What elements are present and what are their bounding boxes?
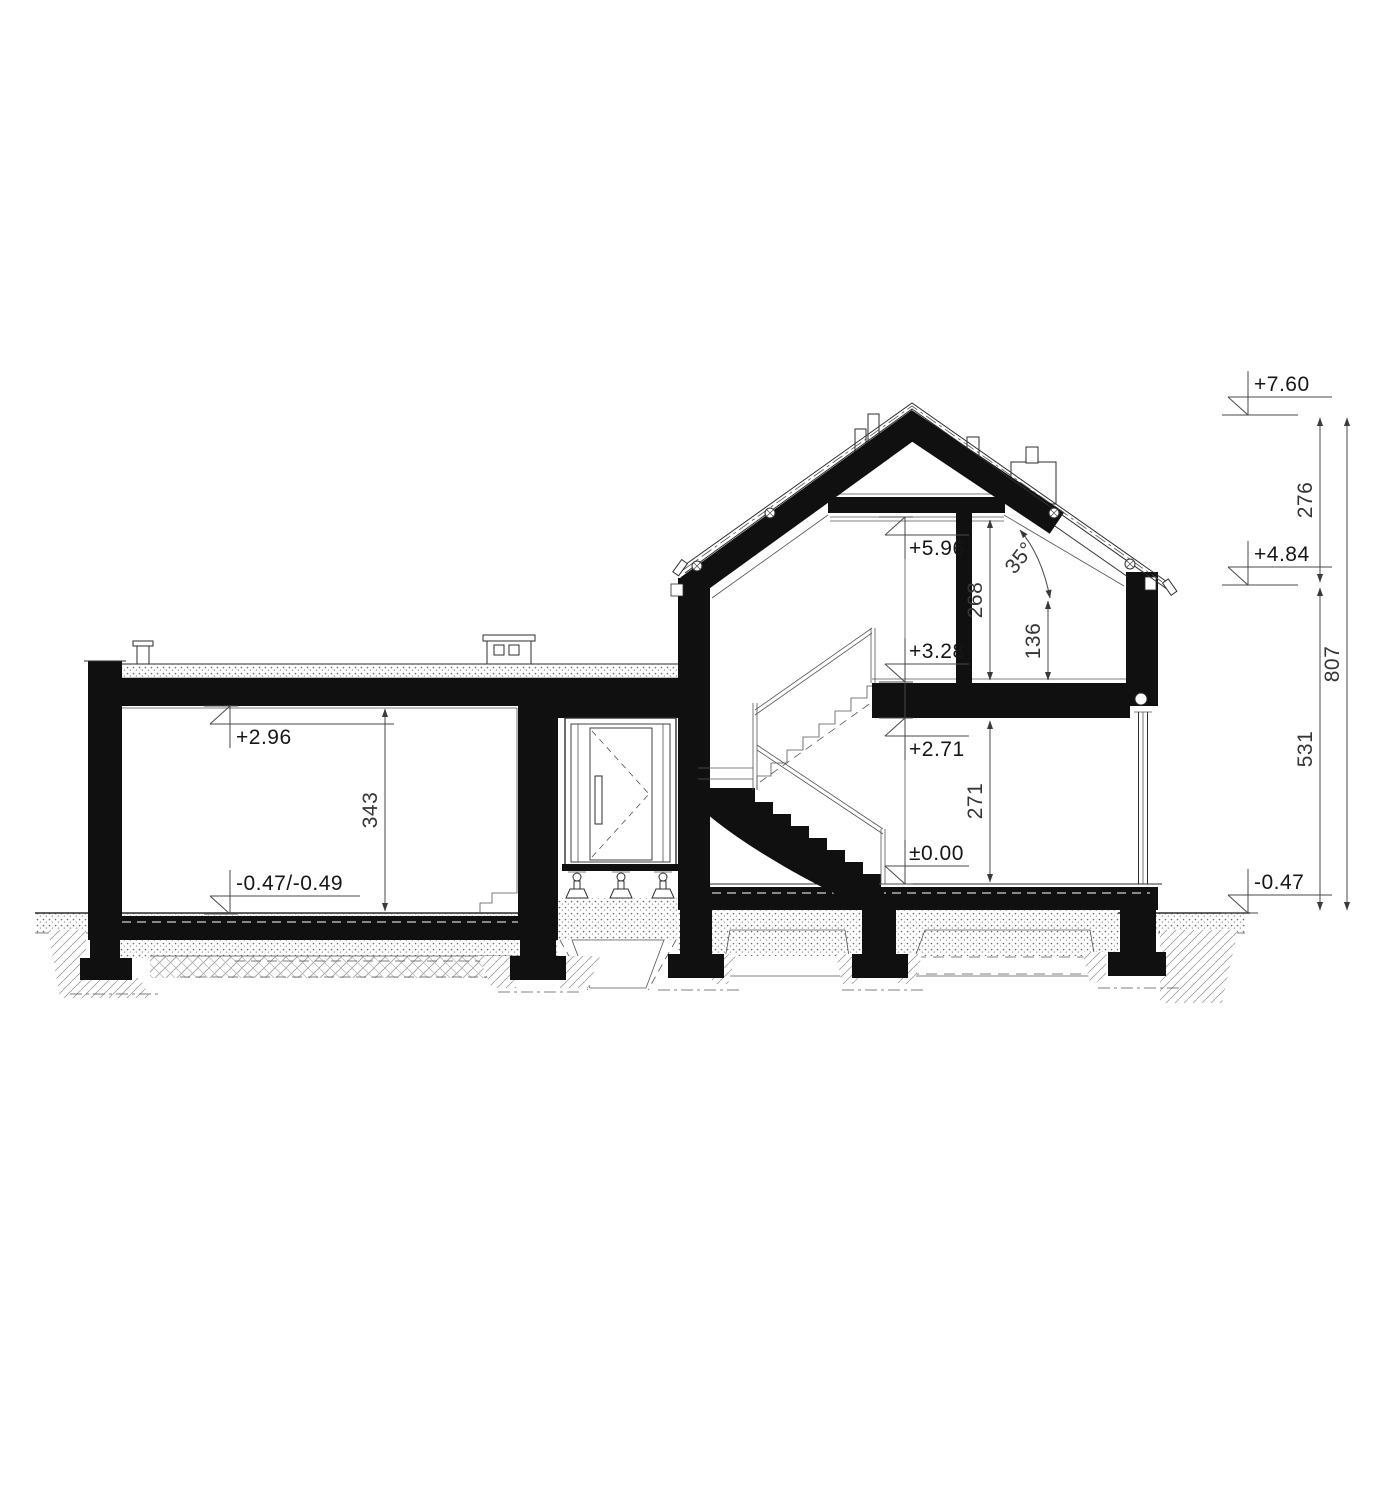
entrance-lintel — [556, 678, 678, 718]
door-handle — [595, 776, 602, 824]
level-label-ground-ceiling: +2.71 — [909, 738, 965, 761]
dim-label-total-height: 807 — [1321, 646, 1344, 683]
level-label-ground-floor: ±0.00 — [909, 842, 964, 865]
garage-chimney — [483, 635, 535, 665]
level-label-garage-floor: -0.47/-0.49 — [236, 872, 343, 895]
level-label-collar: +5.96 — [909, 537, 965, 560]
door-threshold — [562, 864, 680, 871]
dim-label-garage-height: 343 — [359, 792, 382, 829]
attic-floor-slab — [872, 683, 1130, 718]
dim-label-knee-wall: 136 — [1022, 623, 1045, 660]
flat-roof-gravel — [88, 664, 678, 678]
house-section-drawing: +7.60 +4.84 -0.47 +5.96 +3.28 +2.71 — [0, 0, 1400, 1485]
house-left-wall — [678, 578, 710, 887]
garage-right-wall — [518, 706, 558, 940]
entrance-door — [562, 718, 680, 898]
level-label-eaves: +4.84 — [1254, 543, 1310, 566]
level-label-garage-ceiling: +2.96 — [236, 726, 292, 749]
dim-label-ground-floor-height: 271 — [964, 783, 987, 820]
roller-blind-axle — [1135, 693, 1147, 705]
dim-label-ridge-to-eaves: 276 — [1294, 482, 1317, 519]
garage-left-wall — [88, 661, 122, 940]
level-label-ridge: +7.60 — [1254, 373, 1310, 396]
architectural-section-page: +7.60 +4.84 -0.47 +5.96 +3.28 +2.71 — [0, 0, 1400, 1485]
dim-label-eaves-to-terrain: 531 — [1294, 731, 1317, 768]
collar-beam — [828, 497, 1005, 513]
dim-label-attic-height: 268 — [964, 582, 987, 619]
level-label-attic-floor: +3.28 — [909, 640, 965, 663]
house-right-wall — [1126, 572, 1158, 706]
level-label-terrain-right: -0.47 — [1254, 871, 1304, 894]
